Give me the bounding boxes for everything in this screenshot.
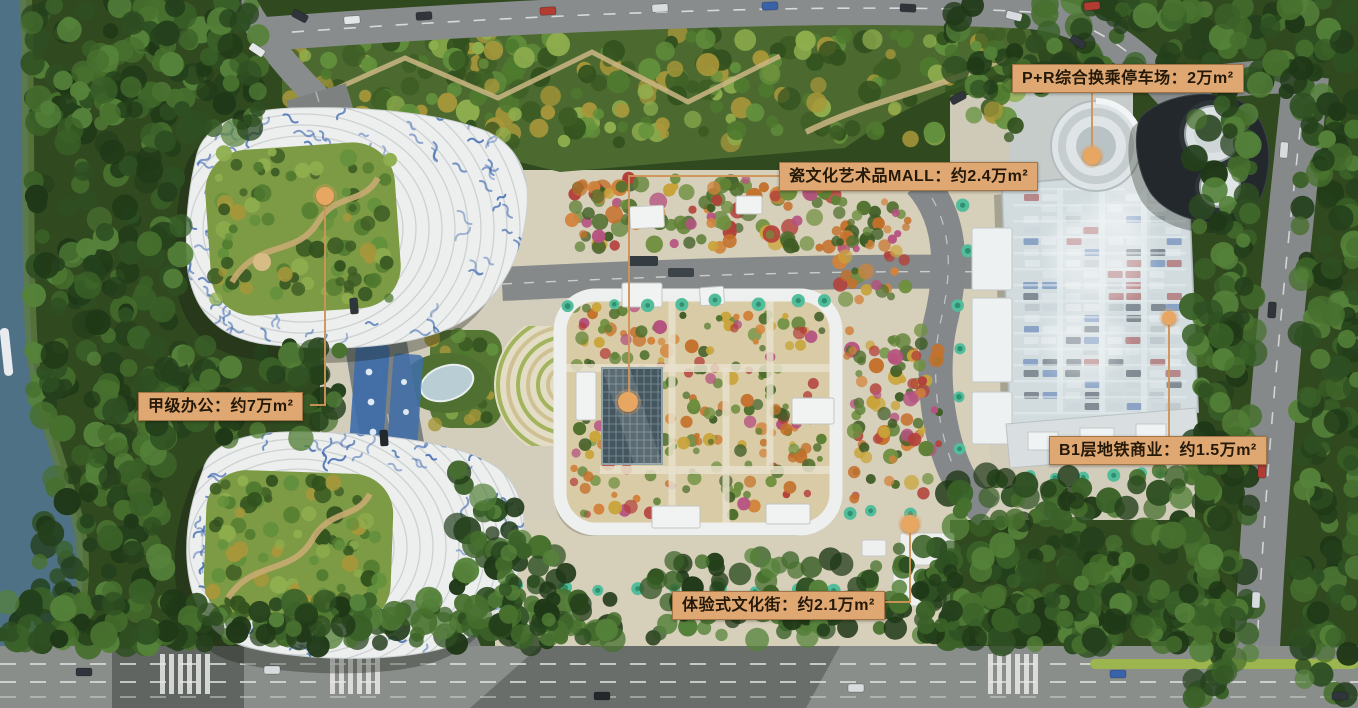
leader-line-mall-h <box>628 175 779 177</box>
annotation-parking-lot: P+R综合换乘停车场：2万m² <box>1012 64 1244 93</box>
skylight-grid <box>602 368 662 464</box>
bus-shelter <box>628 256 658 266</box>
mall-north-road <box>502 272 992 284</box>
annotation-text: 体验式文化街：约2.1万m² <box>682 597 875 614</box>
leader-line-subway <box>1168 318 1170 436</box>
marker-dot-subway <box>1162 311 1176 325</box>
annotation-text: B1层地铁商业：约1.5万m² <box>1059 442 1257 459</box>
tower-north-courtyard <box>202 140 403 319</box>
annotation-office: 甲级办公：约7万m² <box>138 392 303 421</box>
marker-dot-street <box>901 515 919 533</box>
annotation-culture-street: 体验式文化街：约2.1万m² <box>672 591 885 620</box>
aerial-master-plan-rendering: P+R综合换乘停车场：2万m² 瓷文化艺术品MALL：约2.4万m² 甲级办公：… <box>0 0 1358 708</box>
marker-dot-parking <box>1083 147 1101 165</box>
annotation-text: 瓷文化艺术品MALL：约2.4万m² <box>789 168 1028 185</box>
leader-line-street-v <box>909 524 911 602</box>
annotation-mall: 瓷文化艺术品MALL：约2.4万m² <box>779 162 1038 191</box>
annotation-text: 甲级办公：约7万m² <box>148 398 293 415</box>
marker-dot-office <box>316 187 334 205</box>
marker-dot-mall <box>618 392 638 412</box>
annotation-text: P+R综合换乘停车场：2万m² <box>1022 70 1234 87</box>
leader-line-office-v <box>324 196 326 406</box>
leader-line-mall-v <box>628 175 630 402</box>
annex-buildings <box>972 228 1012 444</box>
annotation-subway-retail: B1层地铁商业：约1.5万m² <box>1049 436 1267 465</box>
